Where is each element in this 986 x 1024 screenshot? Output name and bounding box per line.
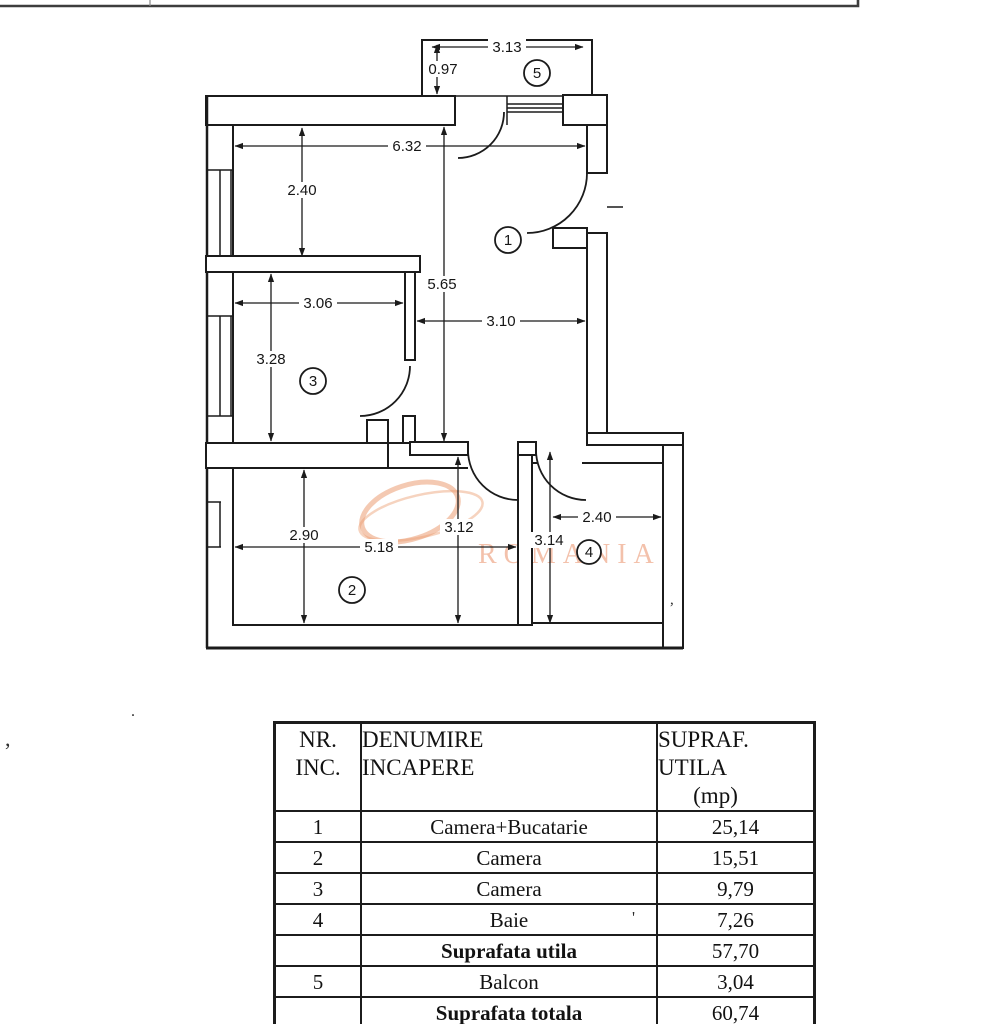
- cell-name: Camera: [361, 873, 657, 904]
- header-utila: UTILA: [658, 754, 813, 782]
- balcony-door-arc: [458, 112, 504, 158]
- room-3-number: 3: [309, 373, 317, 390]
- scan-speck-dot: .: [131, 703, 135, 721]
- table-header-row: NR. INC. DENUMIRE INCAPERE SUPRAF. UTILA…: [275, 723, 815, 812]
- cell-name: Suprafata utila: [361, 935, 657, 966]
- room-2-number: 2: [348, 582, 356, 599]
- entrance-door-arc: [527, 173, 587, 233]
- cell-name: Balcon: [361, 966, 657, 997]
- scan-speck-comma: ,: [5, 726, 11, 752]
- dim-label-bath-height: 3.14: [534, 532, 563, 549]
- table-row: 3 Camera 9,79: [275, 873, 815, 904]
- wall-top-right-block: [563, 95, 607, 125]
- wall-bath-right: [663, 445, 683, 648]
- wall-room2-bath-divider: [518, 455, 532, 625]
- door-arcs: [360, 112, 587, 500]
- dim-label-balcony-width: 3.13: [492, 39, 521, 56]
- cell-nr: [275, 997, 362, 1024]
- cell-nr: [275, 935, 362, 966]
- wall-room3-top: [206, 256, 420, 272]
- header-denumire-line1: DENUMIRE: [362, 726, 656, 754]
- cell-name: Baie: [361, 904, 657, 935]
- window-left-2: [206, 274, 233, 443]
- room-1-number: 1: [504, 232, 512, 249]
- window-left-1: [206, 170, 233, 256]
- cell-value: 57,70: [657, 935, 815, 966]
- dim-label-room1-width: 6.32: [392, 138, 421, 155]
- dim-label-room3-width: 3.06: [303, 295, 332, 312]
- watermark-text: ROMANIA: [478, 539, 661, 570]
- wall-top-band: [206, 96, 455, 125]
- cell-nr: 4: [275, 904, 362, 935]
- table-row: 5 Balcon 3,04: [275, 966, 815, 997]
- dim-label-room2-width: 5.18: [364, 539, 393, 556]
- cell-value: 60,74: [657, 997, 815, 1024]
- header-suprafata: SUPRAF. UTILA (mp): [657, 723, 815, 812]
- cell-value: 7,26: [657, 904, 815, 935]
- dim-label-room1-height: 5.65: [427, 276, 456, 293]
- table-row-total: Suprafata totala 60,74: [275, 997, 815, 1024]
- cell-nr: 5: [275, 966, 362, 997]
- wall-room2-top-left: [206, 443, 388, 468]
- header-supraf: SUPRAF.: [658, 726, 813, 754]
- cell-value: 9,79: [657, 873, 815, 904]
- dim-label-room2-height: 2.90: [289, 527, 318, 544]
- wall-hall-bottom: [410, 442, 468, 455]
- scan-speck-apostrophe: ': [632, 908, 635, 928]
- table-row: 4 Baie 7,26: [275, 904, 815, 935]
- wall-pillar-1: [367, 420, 388, 443]
- dim-label-room1-top-height: 2.40: [287, 182, 316, 199]
- header-nr: NR.: [276, 726, 360, 754]
- cell-name: Camera+Bucatarie: [361, 811, 657, 842]
- cell-nr: 3: [275, 873, 362, 904]
- header-inc: INC.: [276, 754, 360, 782]
- entrance-stub-wall: [553, 228, 587, 248]
- wall-right-lower: [587, 233, 607, 433]
- header-nr-inc: NR. INC.: [275, 723, 362, 812]
- wall-right-upper: [587, 125, 607, 173]
- table-row: 1 Camera+Bucatarie 25,14: [275, 811, 815, 842]
- bath-door-arc: [536, 450, 586, 500]
- dim-label-bath-width: 2.40: [582, 509, 611, 526]
- wall-pillar-2: [403, 416, 415, 443]
- room-5-number: 5: [533, 65, 541, 82]
- room2-door-arc: [468, 450, 518, 500]
- dim-label-room1-lower-width: 3.10: [486, 313, 515, 330]
- cell-nr: 1: [275, 811, 362, 842]
- cell-name: Camera: [361, 842, 657, 873]
- balcony-window-sill: [455, 96, 563, 125]
- dim-label-balcony-depth: 0.97: [428, 61, 457, 78]
- scanned-floor-plan-page: ROMANIA: [0, 0, 986, 1024]
- cell-name: Suprafata totala: [361, 997, 657, 1024]
- cell-value: 3,04: [657, 966, 815, 997]
- dim-label-room3-height: 3.28: [256, 351, 285, 368]
- table-row: 2 Camera 15,51: [275, 842, 815, 873]
- scan-speck-comma-2: ,: [670, 592, 674, 609]
- area-table: NR. INC. DENUMIRE INCAPERE SUPRAF. UTILA…: [273, 721, 816, 1024]
- wall-door-post: [518, 442, 536, 455]
- cell-nr: 2: [275, 842, 362, 873]
- wall-bath-top-band: [587, 433, 683, 445]
- table-row-total-utila: Suprafata utila 57,70: [275, 935, 815, 966]
- room3-door-arc: [360, 366, 410, 416]
- scan-border-artifact: [0, 0, 858, 6]
- dim-label-room2-right-height: 3.12: [444, 519, 473, 536]
- cell-value: 15,51: [657, 842, 815, 873]
- header-denumire: DENUMIRE INCAPERE: [361, 723, 657, 812]
- header-mp: (mp): [658, 782, 813, 810]
- room-4-number: 4: [585, 544, 593, 561]
- cell-value: 25,14: [657, 811, 815, 842]
- wall-room3-right: [405, 272, 415, 360]
- header-denumire-line2: INCAPERE: [362, 754, 656, 782]
